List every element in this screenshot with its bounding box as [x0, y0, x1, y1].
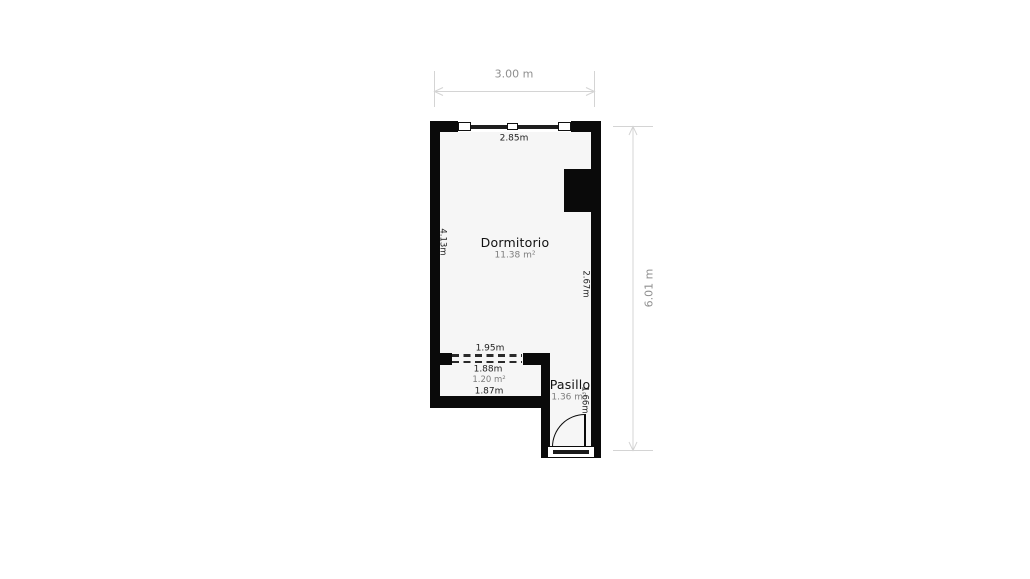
arrow-down-icon: [629, 442, 637, 451]
measurement-top-wall: 2.85m: [500, 135, 529, 144]
room-area-dormitorio: 11.38 m²: [494, 252, 535, 261]
opening-dashed-line-top: [452, 354, 522, 357]
measurement-pasillo-right-wall: 1.66m: [580, 386, 589, 413]
closet-area: 1.20 m²: [472, 375, 505, 384]
structural-column: [564, 169, 591, 212]
closet-bottom-wall: [430, 396, 550, 408]
window-center-post: [507, 123, 518, 130]
door-leaf: [584, 414, 586, 447]
measurement-closet-bottom: 1.87m: [475, 388, 504, 397]
arrow-up-icon: [629, 127, 637, 136]
opening-dashed-line-bottom: [452, 361, 522, 364]
measurement-opening: 1.95m: [476, 345, 505, 354]
interior-wall-left-stub: [438, 353, 452, 365]
window: [458, 122, 571, 131]
overall-width-dimension: 3.00 m: [495, 69, 534, 80]
measurement-left-wall: 4.13m: [438, 228, 447, 255]
room-label-dormitorio: Dormitorio: [481, 237, 550, 250]
arrow-right-icon: [586, 88, 595, 96]
window-frame-left: [458, 122, 471, 131]
door-sill-bar: [553, 450, 589, 454]
right-wall: [591, 121, 601, 458]
measurement-right-wall: 2.67m: [581, 270, 590, 297]
floorplan-canvas: Dormitorio 11.38 m² Pasillo 1.36 m² 2.85…: [0, 0, 1030, 579]
measurement-closet-top: 1.88m: [474, 366, 503, 375]
window-frame-right: [558, 122, 571, 131]
overall-height-dimension: 6.01 m: [644, 269, 655, 308]
arrow-left-icon: [435, 88, 444, 96]
door-threshold: [548, 447, 594, 457]
